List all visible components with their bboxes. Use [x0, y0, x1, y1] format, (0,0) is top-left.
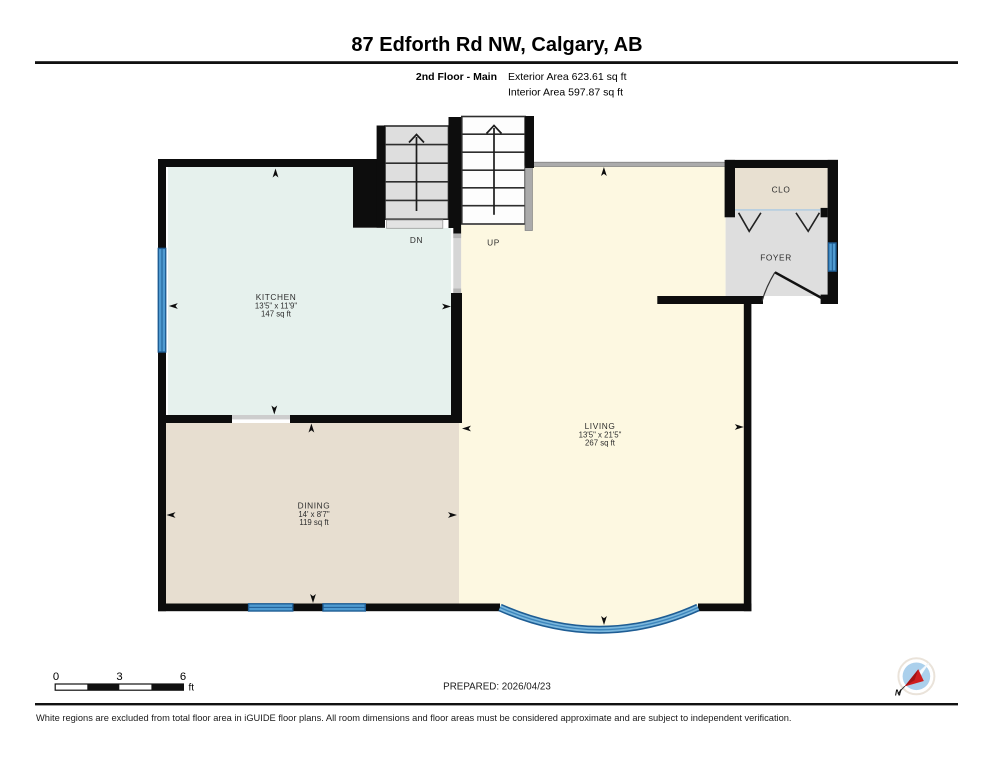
- svg-text:LIVING: LIVING: [585, 421, 616, 431]
- svg-text:267 sq ft: 267 sq ft: [585, 439, 616, 448]
- svg-text:PREPARED: 2026/04/23: PREPARED: 2026/04/23: [443, 682, 551, 693]
- svg-text:CLO: CLO: [772, 185, 791, 195]
- svg-text:White regions are excluded fro: White regions are excluded from total fl…: [36, 713, 792, 723]
- svg-text:N: N: [895, 688, 902, 698]
- svg-text:FOYER: FOYER: [760, 253, 792, 263]
- svg-text:87 Edforth Rd NW, Calgary, AB: 87 Edforth Rd NW, Calgary, AB: [351, 34, 642, 56]
- svg-text:119 sq ft: 119 sq ft: [299, 518, 329, 527]
- svg-text:DINING: DINING: [298, 501, 331, 511]
- svg-text:Interior Area 597.87 sq ft: Interior Area 597.87 sq ft: [508, 87, 623, 99]
- svg-text:ft: ft: [189, 683, 195, 694]
- svg-text:DN: DN: [410, 235, 423, 245]
- svg-text:Exterior Area 623.61 sq ft: Exterior Area 623.61 sq ft: [508, 71, 627, 83]
- svg-text:6: 6: [180, 671, 186, 683]
- svg-text:0: 0: [53, 671, 59, 683]
- svg-text:147 sq ft: 147 sq ft: [261, 310, 292, 319]
- svg-text:3: 3: [116, 671, 122, 683]
- svg-text:UP: UP: [487, 238, 500, 248]
- svg-text:KITCHEN: KITCHEN: [256, 292, 297, 302]
- svg-text:2nd Floor - Main: 2nd Floor - Main: [416, 71, 497, 83]
